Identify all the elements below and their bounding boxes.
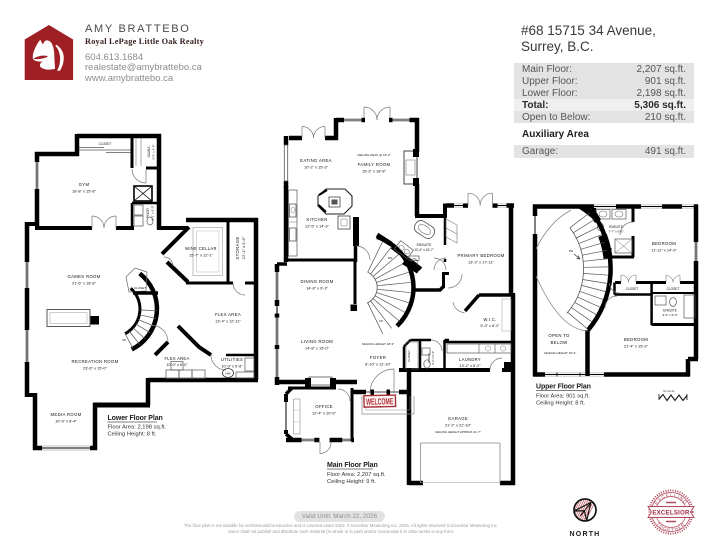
svg-text:15'-7" x 12'-1": 15'-7" x 12'-1" [189,253,214,258]
svg-text:21'-6" x 18'-8": 21'-6" x 18'-8" [72,281,97,286]
svg-text:UP: UP [379,319,383,323]
svg-text:CLOSET: CLOSET [134,286,146,290]
svg-text:UP: UP [122,338,126,342]
svg-text:10'-0" x 6'-0": 10'-0" x 6'-0" [166,363,188,367]
svg-text:ENSUITE: ENSUITE [417,243,432,247]
svg-text:CEILING PEAK @ 15'-2": CEILING PEAK @ 15'-2" [357,153,390,157]
svg-text:Main Floor Plan: Main Floor Plan [327,462,378,469]
svg-text:21'-2" x 21'-10": 21'-2" x 21'-10" [445,423,472,428]
svg-text:7'-7" x 9'-5": 7'-7" x 9'-5" [608,230,623,234]
svg-text:12'-5" x 14'-3": 12'-5" x 14'-3" [305,224,330,229]
svg-text:12'-4" x 10'-9": 12'-4" x 10'-9" [312,411,337,416]
svg-text:BEDROOM: BEDROOM [652,241,676,246]
svg-text:PRIMARY BEDROOM: PRIMARY BEDROOM [457,253,504,258]
svg-text:CLOSET: CLOSET [99,142,112,146]
svg-text:STORAGE: STORAGE [235,236,240,259]
svg-text:CEILING HEIGHT APPROX 21'-7": CEILING HEIGHT APPROX 21'-7" [435,430,481,434]
svg-text:WELCOME: WELCOME [366,396,393,407]
svg-text:9'-3" x 8'-2": 9'-3" x 8'-2" [480,324,500,328]
svg-text:13'-2" x 17'-11": 13'-2" x 17'-11" [468,260,494,265]
svg-text:10'-2" x 15'-3": 10'-2" x 15'-3" [304,165,329,170]
svg-text:SAUNA: SAUNA [147,146,151,158]
svg-text:DN: DN [569,249,573,253]
svg-text:EATING AREA: EATING AREA [300,158,332,163]
svg-text:KITCHEN: KITCHEN [307,217,328,222]
svg-text:Lower Floor Plan: Lower Floor Plan [108,415,163,422]
svg-text:NORTH: NORTH [570,531,601,538]
svg-text:Ceiling Height: 8 ft.: Ceiling Height: 8 ft. [108,431,157,437]
svg-text:Ceiling Height: 9 ft.: Ceiling Height: 9 ft. [327,479,376,485]
svg-text:ENSUITE: ENSUITE [609,225,623,229]
svg-text:13'-4" x 12'-11": 13'-4" x 12'-11" [215,319,241,324]
svg-text:Ceiling Height: 8 ft.: Ceiling Height: 8 ft. [536,400,585,406]
svg-text:DINING ROOM: DINING ROOM [301,279,334,284]
svg-text:11'-11" x 14'-9": 11'-11" x 14'-9" [651,248,677,253]
svg-text:23'-6" x 15'-0": 23'-6" x 15'-0" [83,366,108,371]
svg-text:HW: HW [226,372,231,376]
svg-text:13'-4" x 16'-7": 13'-4" x 16'-7" [414,248,434,252]
svg-text:CEILING HEIGHT 18'-2": CEILING HEIGHT 18'-2" [544,351,577,355]
svg-text:PWDR: PWDR [146,207,150,217]
svg-text:Floor Area: 901 sq.ft.: Floor Area: 901 sq.ft. [536,393,590,399]
svg-text:BEDROOM: BEDROOM [624,337,648,342]
svg-text:16'-2" x 18'-8": 16'-2" x 18'-8" [362,169,387,174]
svg-text:GAMES ROOM: GAMES ROOM [67,274,100,279]
svg-text:OFFICE: OFFICE [315,404,333,409]
svg-text:DN: DN [388,256,392,260]
svg-text:10'-9" x 8'-4": 10'-9" x 8'-4" [55,419,77,424]
svg-text:MEDIA ROOM: MEDIA ROOM [51,412,82,417]
svg-text:10'-9" x 5'-8": 10'-9" x 5'-8" [221,365,243,369]
svg-text:LAUNDRY: LAUNDRY [459,357,481,362]
svg-text:W.I.C.: W.I.C. [483,317,496,322]
svg-text:CEILING HEIGHT 18'-3": CEILING HEIGHT 18'-3" [362,342,395,346]
svg-text:SCALE: SCALE [663,389,675,393]
svg-text:BELOW: BELOW [550,340,568,345]
svg-text:FLEX AREA: FLEX AREA [215,312,241,317]
svg-text:14'-8" x 9'-3": 14'-8" x 9'-3" [306,286,328,291]
svg-text:EXCELSIOR: EXCELSIOR [652,510,690,516]
svg-text:14'-8" x 15'-0": 14'-8" x 15'-0" [305,346,330,351]
svg-text:OPEN TO: OPEN TO [548,333,570,338]
svg-text:FLEX AREA: FLEX AREA [165,356,190,361]
svg-text:RECREATION ROOM: RECREATION ROOM [72,359,119,364]
svg-text:12'-1" x 5'-6": 12'-1" x 5'-6" [241,236,246,259]
svg-text:4'-2" x 5'-4": 4'-2" x 5'-4" [431,351,435,365]
svg-text:6'-0" x 4'-0": 6'-0" x 4'-0" [152,144,156,159]
svg-text:13'-2" x 6'-2": 13'-2" x 6'-2" [459,364,481,368]
svg-text:FOYER: FOYER [370,355,386,360]
svg-text:CLOSET: CLOSET [407,350,411,362]
svg-text:WINE CELLAR: WINE CELLAR [185,246,217,251]
svg-text:CLOSET: CLOSET [626,287,639,291]
svg-text:FAMILY ROOM: FAMILY ROOM [358,162,391,167]
svg-text:LIVING ROOM: LIVING ROOM [301,339,333,344]
svg-text:8'-10" x 11'-10": 8'-10" x 11'-10" [365,362,391,367]
svg-text:CLOSET: CLOSET [667,287,680,291]
svg-text:GARAGE: GARAGE [448,416,468,421]
svg-text:21'-4" x 15'-9": 21'-4" x 15'-9" [624,344,649,349]
svg-text:6'-2" x 5'-0": 6'-2" x 5'-0" [151,205,155,220]
svg-text:Floor Area: 2,207 sq.ft.: Floor Area: 2,207 sq.ft. [327,472,386,478]
svg-text:GYM: GYM [79,182,90,187]
svg-text:UTILITIES: UTILITIES [221,357,243,362]
svg-text:ENSUITE: ENSUITE [663,309,677,313]
svg-text:Upper Floor Plan: Upper Floor Plan [536,384,591,391]
svg-text:18'-8" x 15'-8": 18'-8" x 15'-8" [72,189,97,194]
svg-text:9'-3" x 5'-0": 9'-3" x 5'-0" [662,313,677,317]
svg-text:EXCELLING: EXCELLING [653,492,688,505]
svg-text:Floor Area: 2,198 sq.ft.: Floor Area: 2,198 sq.ft. [108,424,167,430]
